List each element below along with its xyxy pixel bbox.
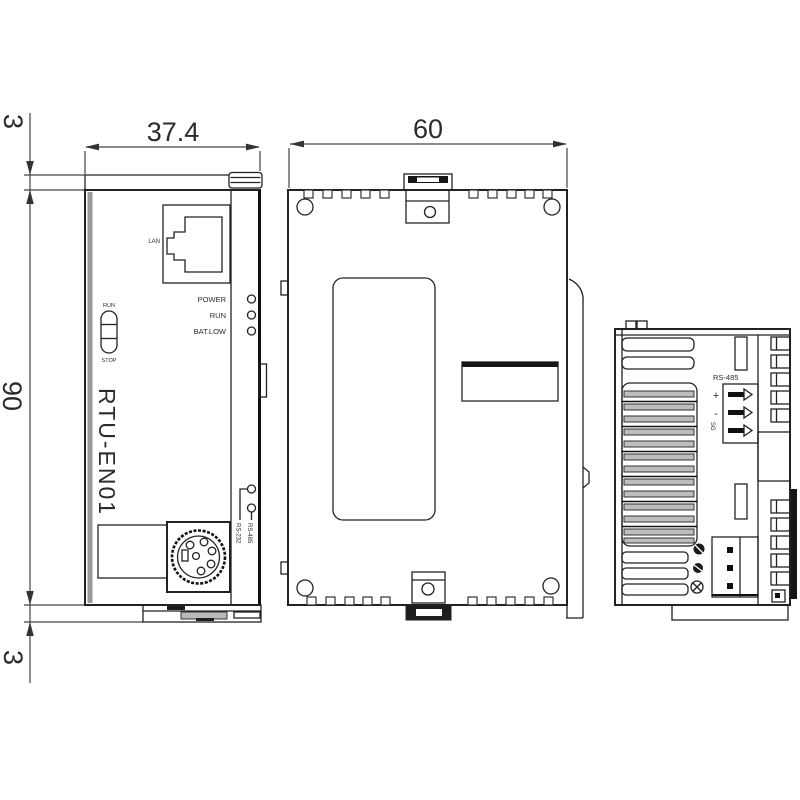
terminal-plus-label: +	[713, 390, 719, 402]
led-run-label: RUN	[210, 311, 226, 320]
rs485-port-label: RS-485	[713, 373, 738, 382]
dim-height: 90	[0, 381, 27, 411]
side-view	[281, 174, 589, 620]
led-batlow-label: BAT.LOW	[194, 327, 227, 336]
front-view: LAN RUN STOP POWER RUN BAT.LOW RTU-EN01	[85, 173, 267, 623]
top-din-clip-tab	[229, 173, 262, 189]
left-latch-tab	[281, 281, 288, 295]
switch-run-label: RUN	[103, 303, 115, 309]
bottom-foot	[672, 605, 788, 620]
dim-bottom-tab: 3	[0, 650, 28, 665]
top-screw-bump	[637, 321, 647, 329]
front-bottom-tab	[143, 605, 261, 622]
dim-front-width: 37.4	[147, 117, 200, 147]
left-latch-tab	[281, 562, 288, 574]
left-edge-shading	[88, 192, 93, 603]
sel-rs232-label: RS-232	[235, 523, 241, 544]
width-dimension-group: 37.4	[85, 117, 260, 174]
model-name-label: RTU-EN01	[94, 388, 120, 516]
rear-view: RS-485 + - SG	[615, 321, 797, 620]
terminal-sg-label: SG	[709, 422, 715, 431]
switch-stop-label: STOP	[102, 358, 117, 364]
top-screw-bump	[626, 321, 636, 329]
rtu-en01-dimension-drawing: 3 90 3 37.4 60 LA	[0, 0, 800, 800]
dimension-drawing-canvas: 3 90 3 37.4 60 LA	[0, 0, 800, 800]
lan-label: LAN	[148, 239, 160, 245]
terminal-minus-label: -	[714, 408, 718, 420]
dim-top-tab: 3	[0, 114, 28, 129]
din-rail-flange	[566, 279, 589, 618]
dim-depth: 60	[413, 114, 443, 144]
sel-rs485-label: RS-485	[246, 523, 252, 544]
led-power-label: POWER	[198, 295, 227, 304]
din-rail-edge	[791, 489, 797, 599]
